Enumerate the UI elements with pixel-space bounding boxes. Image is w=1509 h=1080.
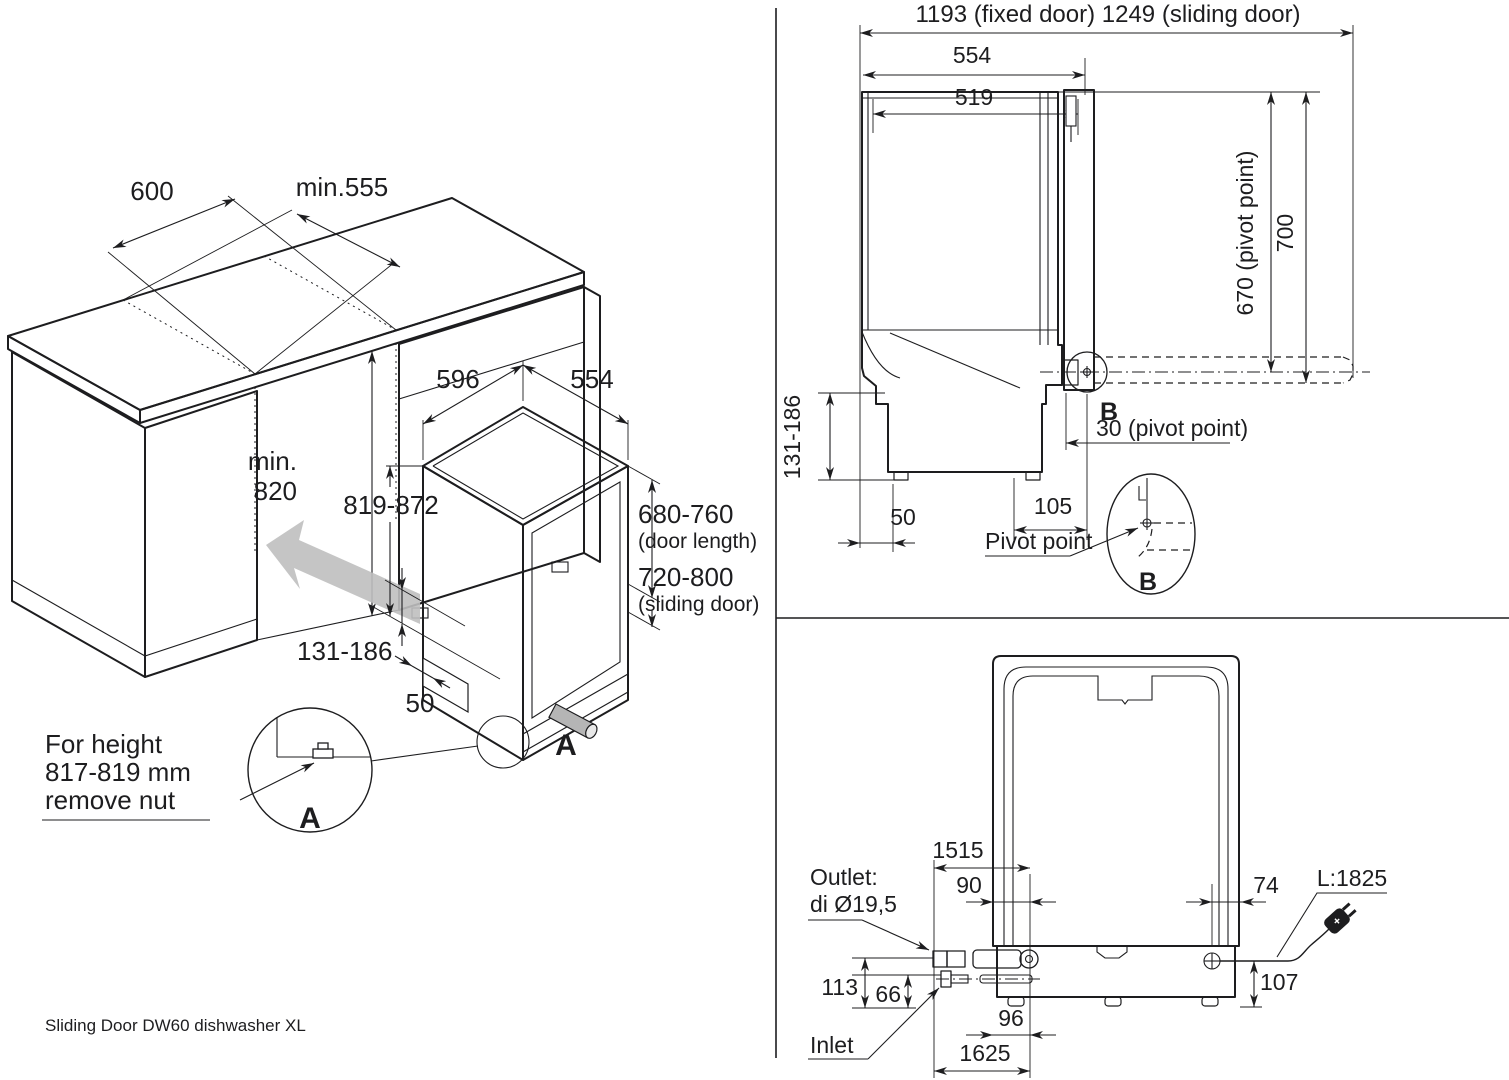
dim-554-side-label: 554 <box>953 42 992 68</box>
dim-pivot-offset: 30 (pivot point) <box>1066 393 1248 450</box>
dim-66-label: 66 <box>875 981 901 1007</box>
dim-90-label: 90 <box>956 872 982 898</box>
dim-pivot-heights: 670 (pivot point) 700 <box>1232 92 1306 383</box>
cord-exit-icon <box>1204 953 1220 969</box>
dim-30-label: 30 (pivot point) <box>1096 415 1248 441</box>
dim-720-800-note: (sliding door) <box>638 593 759 616</box>
isometric-installation-view: 600 min.555 min. 820 <box>8 172 759 1035</box>
right-cabinet <box>399 287 600 618</box>
dim-total-depth: 1193 (fixed door) 1249 (sliding door) <box>860 1 1353 33</box>
dim-1193-1249-label: 1193 (fixed door) 1249 (sliding door) <box>915 1 1300 28</box>
dim-hose-heights: 113 66 <box>821 958 916 1008</box>
detail-b-label: B <box>1139 568 1157 596</box>
side-view-unit <box>862 90 1094 480</box>
kitchen-counter <box>8 198 600 677</box>
note-line-1: For height <box>45 729 163 759</box>
levelling-nut-icon <box>313 743 362 758</box>
power-cord: L:1825 <box>1220 865 1387 961</box>
installation-diagram-page: 600 min.555 min. 820 <box>0 0 1509 1080</box>
left-cabinet <box>12 352 257 677</box>
dishwasher-isometric: A <box>423 407 628 768</box>
dim-596-label: 596 <box>436 364 479 394</box>
dim-min555-label: min.555 <box>296 172 389 202</box>
note-line-2: 817-819 mm <box>45 757 191 787</box>
dim-107-label: 107 <box>1260 969 1298 995</box>
dim-min820-label-1: min. <box>248 446 297 476</box>
dim-min820-label-2: 820 <box>254 476 297 506</box>
dim-pivot-x: 105 <box>1014 394 1087 540</box>
detail-ref-circle-a <box>477 716 529 768</box>
dim-131-186-side-label: 131-186 <box>779 395 805 479</box>
dim-50-side-label: 50 <box>890 504 916 530</box>
outlet-hose <box>852 950 1038 968</box>
dim-50-label: 50 <box>406 688 435 718</box>
dim-foot-range: 131-186 <box>779 393 900 480</box>
back-view-panel: L:1825 1515 90 74 113 66 <box>808 656 1387 1078</box>
dim-cord-length-label: L:1825 <box>1317 865 1387 891</box>
dim-131-186-label: 131-186 <box>297 636 392 666</box>
detail-ref-a: A <box>555 729 577 762</box>
dim-105-label: 105 <box>1034 493 1072 519</box>
dim-1625-label: 1625 <box>959 1040 1010 1066</box>
insertion-arrow <box>266 520 420 624</box>
diagram-canvas: 600 min.555 min. 820 <box>0 0 1509 1080</box>
dim-dw-width-depth: 596 554 <box>423 361 628 460</box>
detail-a-label: A <box>299 802 321 835</box>
dim-1515-label: 1515 <box>932 837 983 863</box>
dim-cord-height: 107 <box>1240 961 1298 1007</box>
dim-cord-position: 74 <box>1186 872 1279 946</box>
dim-720-800-label: 720-800 <box>638 562 733 592</box>
dim-700-label: 700 <box>1272 214 1298 252</box>
dim-outlet-position: 90 <box>956 872 1056 902</box>
footer-caption: Sliding Door DW60 dishwasher XL <box>45 1016 306 1035</box>
dim-819-872-label: 819-872 <box>343 490 438 520</box>
dim-680-760-note: (door length) <box>638 530 757 553</box>
outlet-label-line2: di Ø19,5 <box>810 891 897 917</box>
note-line-3: remove nut <box>45 785 176 815</box>
dim-door-length: 680-760 (door length) 720-800 (sliding d… <box>628 466 759 630</box>
side-view-panel: 1193 (fixed door) 1249 (sliding door) 55… <box>779 1 1370 596</box>
outlet-label: Outlet: di Ø19,5 <box>808 864 929 950</box>
dim-back-gap: 50 <box>838 484 916 552</box>
detail-b: B Pivot point <box>985 474 1195 596</box>
dim-96-label: 96 <box>998 1005 1024 1031</box>
pivot-point-label: Pivot point <box>985 528 1093 554</box>
dim-680-760-label: 680-760 <box>638 499 733 529</box>
dim-inlet-position: 96 <box>966 1005 1056 1035</box>
inlet-label-text: Inlet <box>810 1032 854 1058</box>
dim-outlet-hose-length: 1515 <box>932 837 1030 868</box>
dim-600-label: 600 <box>130 176 173 206</box>
dim-670-label: 670 (pivot point) <box>1232 151 1258 316</box>
side-view-door <box>1064 90 1094 390</box>
dim-113-label: 113 <box>821 974 858 1000</box>
outlet-label-line1: Outlet: <box>810 864 878 890</box>
detail-a: A For height 817-819 mm remove nut <box>42 708 478 835</box>
dim-74-label: 74 <box>1253 872 1279 898</box>
dim-inlet-hose-length: 1625 <box>934 1040 1030 1071</box>
dim-554-label: 554 <box>570 364 613 394</box>
dim-519-label: 519 <box>955 84 993 110</box>
